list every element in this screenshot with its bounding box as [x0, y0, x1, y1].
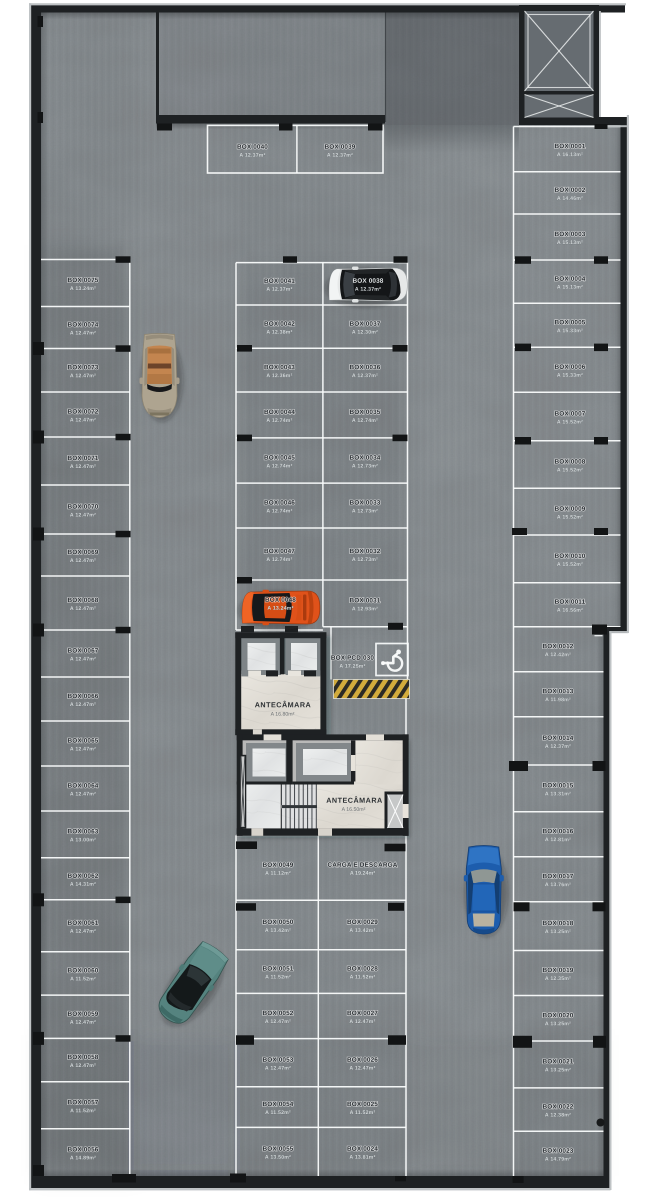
- svg-text:BOX 0060: BOX 0060: [67, 968, 98, 975]
- svg-text:BOX 0017: BOX 0017: [542, 873, 573, 880]
- svg-text:A 12.47m²: A 12.47m²: [265, 1019, 291, 1025]
- svg-text:BOX 0014: BOX 0014: [542, 735, 573, 742]
- svg-text:BOX 0057: BOX 0057: [67, 1099, 98, 1106]
- svg-text:A 14.46m²: A 14.46m²: [557, 196, 583, 202]
- svg-text:A 15.52m²: A 15.52m²: [557, 562, 583, 568]
- svg-text:BOX 0022: BOX 0022: [542, 1104, 573, 1111]
- svg-text:BOX 0049: BOX 0049: [262, 862, 293, 869]
- svg-text:A 12.47m²: A 12.47m²: [70, 464, 96, 470]
- svg-text:A 12.37m²: A 12.37m²: [327, 153, 353, 159]
- svg-text:A 11.52m²: A 11.52m²: [350, 1110, 376, 1116]
- svg-text:BOX 0002: BOX 0002: [554, 187, 585, 194]
- svg-text:BOX 0059: BOX 0059: [67, 1011, 98, 1018]
- svg-text:A 12.47m²: A 12.47m²: [70, 558, 96, 564]
- svg-text:A 12.81m²: A 12.81m²: [545, 837, 571, 843]
- svg-text:A 12.37m²: A 12.37m²: [352, 373, 378, 379]
- svg-text:A 12.74m²: A 12.74m²: [352, 418, 378, 424]
- svg-text:BOX 0016: BOX 0016: [542, 828, 573, 835]
- svg-text:BOX 0075: BOX 0075: [67, 277, 98, 284]
- svg-text:A 12.74m²: A 12.74m²: [266, 509, 292, 515]
- svg-text:BOX 0035: BOX 0035: [349, 409, 380, 416]
- svg-text:ANTECÂMARA: ANTECÂMARA: [255, 700, 312, 709]
- svg-text:BOX 0028: BOX 0028: [347, 966, 378, 973]
- svg-text:BOX 0001: BOX 0001: [554, 143, 585, 150]
- svg-text:A 12.47m²: A 12.47m²: [70, 791, 96, 797]
- svg-text:A 17.25m²: A 17.25m²: [339, 664, 365, 670]
- svg-text:BOX 0061: BOX 0061: [67, 920, 98, 927]
- svg-text:A 13.00m²: A 13.00m²: [70, 837, 96, 843]
- svg-text:BOX 0071: BOX 0071: [67, 455, 98, 462]
- svg-text:A 12.47m²: A 12.47m²: [70, 606, 96, 612]
- svg-text:A 15.33m²: A 15.33m²: [557, 328, 583, 334]
- svg-text:A 12.37m²: A 12.37m²: [266, 287, 292, 293]
- svg-text:A 11.52m²: A 11.52m²: [350, 975, 376, 981]
- svg-text:BOX 0008: BOX 0008: [554, 459, 585, 466]
- svg-text:BOX 0045: BOX 0045: [264, 455, 295, 462]
- svg-text:BOX 0003: BOX 0003: [554, 231, 585, 238]
- svg-text:A 15.13m²: A 15.13m²: [557, 240, 583, 246]
- svg-text:BOX 0064: BOX 0064: [67, 783, 98, 790]
- svg-text:A 12.36m²: A 12.36m²: [266, 373, 292, 379]
- svg-text:A 12.73m²: A 12.73m²: [352, 509, 378, 515]
- svg-text:A 12.47m²: A 12.47m²: [70, 1020, 96, 1026]
- svg-text:A 12.37m²: A 12.37m²: [545, 744, 571, 750]
- svg-text:A 12.38m²: A 12.38m²: [545, 1113, 571, 1119]
- svg-text:CARGA E DESCARGA: CARGA E DESCARGA: [328, 862, 398, 869]
- svg-text:A 12.37m²: A 12.37m²: [239, 153, 265, 159]
- svg-text:BOX 0055: BOX 0055: [262, 1146, 293, 1153]
- svg-text:BOX 0048: BOX 0048: [265, 597, 296, 604]
- svg-text:A 12.47m²: A 12.47m²: [70, 512, 96, 518]
- svg-text:BOX 0019: BOX 0019: [542, 967, 573, 974]
- svg-text:BOX 0024: BOX 0024: [347, 1146, 378, 1153]
- svg-text:BOX 0021: BOX 0021: [542, 1059, 573, 1066]
- svg-text:BOX 0018: BOX 0018: [542, 920, 573, 927]
- svg-text:A 13.76m²: A 13.76m²: [545, 882, 571, 888]
- svg-text:A 12.37m²: A 12.37m²: [355, 287, 381, 293]
- svg-text:A 13.42m²: A 13.42m²: [265, 928, 291, 934]
- svg-text:BOX 0050: BOX 0050: [262, 919, 293, 926]
- svg-text:BOX 0036: BOX 0036: [349, 364, 380, 371]
- svg-text:A 11.12m²: A 11.12m²: [265, 871, 291, 877]
- svg-text:A 12.47m²: A 12.47m²: [265, 1066, 291, 1072]
- svg-text:BOX 0053: BOX 0053: [262, 1057, 293, 1064]
- svg-text:BOX 0027: BOX 0027: [347, 1010, 378, 1017]
- svg-text:A 12.73m²: A 12.73m²: [352, 463, 378, 469]
- svg-text:A 12.47m²: A 12.47m²: [349, 1019, 375, 1025]
- svg-text:BOX 0013: BOX 0013: [542, 688, 573, 695]
- svg-text:A 11.52m²: A 11.52m²: [70, 1108, 96, 1114]
- svg-text:A 13.42m²: A 13.42m²: [349, 928, 375, 934]
- svg-text:BOX 0015: BOX 0015: [542, 782, 573, 789]
- svg-text:BOX 0039: BOX 0039: [324, 144, 355, 151]
- svg-text:A 12.47m²: A 12.47m²: [70, 330, 96, 336]
- svg-text:BOX 0006: BOX 0006: [554, 364, 585, 371]
- svg-text:A 13.24m²: A 13.24m²: [267, 606, 293, 612]
- svg-text:A 12.47m²: A 12.47m²: [349, 1066, 375, 1072]
- svg-text:A 12.47m²: A 12.47m²: [70, 656, 96, 662]
- svg-text:BOX 0046: BOX 0046: [264, 500, 295, 507]
- svg-text:BOX 0056: BOX 0056: [67, 1146, 98, 1153]
- svg-text:BOX 0052: BOX 0052: [262, 1010, 293, 1017]
- svg-text:A 15.52m²: A 15.52m²: [557, 467, 583, 473]
- svg-text:A 16.80m²: A 16.80m²: [271, 712, 295, 718]
- svg-text:A 15.52m²: A 15.52m²: [557, 419, 583, 425]
- svg-text:BOX 0066: BOX 0066: [67, 693, 98, 700]
- svg-text:BOX PCD 030: BOX PCD 030: [331, 655, 375, 662]
- svg-text:BOX 0041: BOX 0041: [264, 278, 295, 285]
- svg-text:A 16.56m²: A 16.56m²: [557, 608, 583, 614]
- svg-text:BOX 0023: BOX 0023: [542, 1148, 573, 1155]
- svg-text:A 13.81m²: A 13.81m²: [349, 1155, 375, 1161]
- svg-text:A 12.74m²: A 12.74m²: [266, 418, 292, 424]
- svg-text:BOX 0073: BOX 0073: [67, 364, 98, 371]
- svg-text:BOX 0069: BOX 0069: [67, 549, 98, 556]
- svg-text:BOX 0009: BOX 0009: [554, 506, 585, 513]
- svg-text:BOX 0047: BOX 0047: [264, 548, 295, 555]
- svg-text:BOX 0062: BOX 0062: [67, 873, 98, 880]
- svg-text:BOX 0070: BOX 0070: [67, 504, 98, 511]
- svg-text:BOX 0040: BOX 0040: [237, 144, 268, 151]
- svg-text:A 11.52m²: A 11.52m²: [70, 976, 96, 982]
- svg-text:BOX 0072: BOX 0072: [67, 409, 98, 416]
- svg-text:A 13.50m²: A 13.50m²: [265, 1155, 291, 1161]
- svg-text:A 12.42m²: A 12.42m²: [545, 652, 571, 658]
- svg-text:BOX 0043: BOX 0043: [264, 364, 295, 371]
- svg-text:A 11.52m²: A 11.52m²: [265, 975, 291, 981]
- svg-text:A 12.74m²: A 12.74m²: [266, 557, 292, 563]
- svg-text:ANTECÂMARA: ANTECÂMARA: [326, 796, 383, 805]
- svg-text:BOX 0067: BOX 0067: [67, 648, 98, 655]
- svg-text:A 15.33m²: A 15.33m²: [557, 373, 583, 379]
- svg-text:A 11.52m²: A 11.52m²: [265, 1110, 291, 1116]
- svg-text:BOX 0025: BOX 0025: [347, 1101, 378, 1108]
- svg-text:BOX 0031: BOX 0031: [349, 597, 380, 604]
- svg-text:BOX 0074: BOX 0074: [67, 322, 98, 329]
- svg-text:A 16.50m²: A 16.50m²: [342, 807, 366, 813]
- svg-text:BOX 0065: BOX 0065: [67, 738, 98, 745]
- svg-text:BOX 0029: BOX 0029: [347, 919, 378, 926]
- svg-text:BOX 0004: BOX 0004: [554, 276, 585, 283]
- svg-text:A 12.47m²: A 12.47m²: [70, 702, 96, 708]
- svg-text:BOX 0054: BOX 0054: [262, 1101, 293, 1108]
- svg-text:BOX 0058: BOX 0058: [67, 1054, 98, 1061]
- svg-text:A 14.31m²: A 14.31m²: [70, 882, 96, 888]
- svg-text:BOX 0026: BOX 0026: [347, 1057, 378, 1064]
- svg-text:BOX 0020: BOX 0020: [542, 1012, 573, 1019]
- svg-text:A 14.79m²: A 14.79m²: [545, 1157, 571, 1163]
- svg-text:BOX 0068: BOX 0068: [67, 597, 98, 604]
- svg-text:A 12.35m²: A 12.35m²: [545, 976, 571, 982]
- svg-text:BOX 0012: BOX 0012: [542, 643, 573, 650]
- svg-text:BOX 0037: BOX 0037: [349, 321, 380, 328]
- svg-text:A 14.89m²: A 14.89m²: [70, 1155, 96, 1161]
- svg-text:A 16.13m²: A 16.13m²: [557, 152, 583, 158]
- svg-text:A 12.93m²: A 12.93m²: [352, 606, 378, 612]
- svg-text:BOX 0038: BOX 0038: [352, 278, 383, 285]
- svg-text:A 12.73m²: A 12.73m²: [352, 557, 378, 563]
- svg-text:BOX 0063: BOX 0063: [67, 828, 98, 835]
- svg-text:A 12.47m²: A 12.47m²: [70, 746, 96, 752]
- svg-text:A 13.25m²: A 13.25m²: [545, 1067, 571, 1073]
- svg-text:BOX 0010: BOX 0010: [554, 553, 585, 560]
- svg-text:A 19.24m²: A 19.24m²: [350, 871, 375, 877]
- svg-text:A 12.74m²: A 12.74m²: [266, 463, 292, 469]
- svg-text:A 13.25m²: A 13.25m²: [545, 929, 571, 935]
- svg-text:BOX 0034: BOX 0034: [349, 455, 380, 462]
- svg-text:BOX 0005: BOX 0005: [554, 319, 585, 326]
- svg-text:A 12.47m²: A 12.47m²: [70, 929, 96, 935]
- svg-text:A 13.25m²: A 13.25m²: [545, 1021, 571, 1027]
- svg-text:A 15.52m²: A 15.52m²: [557, 515, 583, 521]
- svg-text:A 13.24m²: A 13.24m²: [70, 286, 96, 292]
- svg-text:A 13.31m²: A 13.31m²: [545, 791, 571, 797]
- svg-text:BOX 0011: BOX 0011: [555, 599, 586, 606]
- svg-text:A 12.47m²: A 12.47m²: [70, 373, 96, 379]
- svg-text:BOX 0042: BOX 0042: [264, 321, 295, 328]
- svg-text:BOX 0051: BOX 0051: [262, 966, 293, 973]
- svg-text:BOX 0033: BOX 0033: [349, 500, 380, 507]
- svg-text:A 12.30m²: A 12.30m²: [352, 330, 378, 336]
- svg-text:A 15.13m²: A 15.13m²: [557, 285, 583, 291]
- svg-text:BOX 0007: BOX 0007: [554, 411, 585, 418]
- svg-text:A 12.38m²: A 12.38m²: [266, 330, 292, 336]
- svg-text:BOX 0044: BOX 0044: [264, 409, 295, 416]
- svg-text:A 12.47m²: A 12.47m²: [70, 417, 96, 423]
- svg-text:BOX 0032: BOX 0032: [349, 548, 380, 555]
- svg-text:A 12.47m²: A 12.47m²: [70, 1063, 96, 1069]
- svg-text:A 11.98m²: A 11.98m²: [545, 697, 571, 703]
